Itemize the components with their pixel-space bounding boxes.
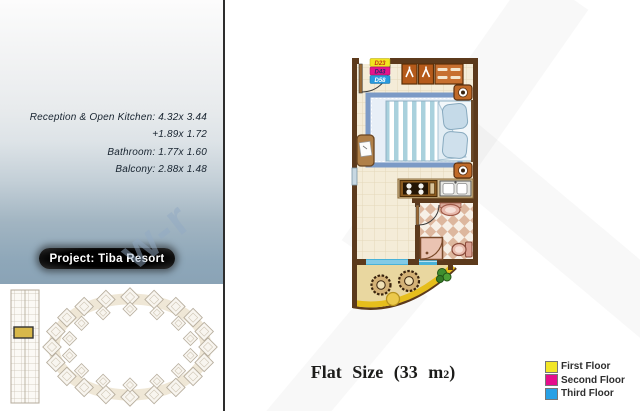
svg-text:D58: D58 bbox=[374, 78, 386, 84]
pillow bbox=[442, 103, 468, 130]
siteplan-building-ring bbox=[43, 288, 217, 406]
kitchen-sink bbox=[440, 181, 471, 196]
unit-label-second-floor: D43 bbox=[370, 67, 390, 76]
svg-text:D43: D43 bbox=[374, 70, 386, 76]
balcony-table bbox=[387, 293, 400, 306]
nightstand bbox=[454, 85, 472, 100]
legend-item-first-floor: First Floor bbox=[545, 360, 625, 373]
siteplan-highlighted-unit bbox=[14, 327, 33, 338]
dimension-line: Bathroom: 1.77x 1.60 bbox=[6, 144, 207, 161]
dimension-line: Balcony: 2.88x 1.48 bbox=[6, 161, 207, 178]
stove bbox=[400, 181, 437, 197]
bed bbox=[386, 100, 474, 162]
vertical-divider bbox=[223, 0, 225, 411]
floor-legend: First Floor Second Floor Third Floor bbox=[545, 360, 625, 401]
flat-size-title: Flat Size (33 m2) bbox=[288, 362, 478, 383]
dimension-line: +1.89x 1.72 bbox=[6, 126, 207, 143]
flat-floor-plan: D23 D43 D58 bbox=[340, 45, 490, 325]
bathroom-sink bbox=[440, 203, 461, 216]
master-site-plan bbox=[8, 287, 218, 407]
balcony bbox=[353, 263, 456, 309]
legend-item-third-floor: Third Floor bbox=[545, 387, 625, 400]
legend-label: First Floor bbox=[561, 361, 610, 372]
legend-label: Third Floor bbox=[561, 388, 614, 399]
legend-item-second-floor: Second Floor bbox=[545, 374, 625, 387]
balcony-chair bbox=[372, 276, 391, 295]
dimension-line: Reception & Open Kitchen: 4.32x 3.44 bbox=[6, 109, 207, 126]
kitchen-counter bbox=[398, 179, 473, 198]
flyer-page: Reception & Open Kitchen: 4.32x 3.44 +1.… bbox=[0, 0, 640, 411]
dimension-list: Reception & Open Kitchen: 4.32x 3.44 +1.… bbox=[6, 109, 207, 179]
second-floor-swatch bbox=[545, 374, 558, 386]
third-floor-swatch bbox=[545, 388, 558, 400]
dresser bbox=[435, 64, 463, 84]
headboard bbox=[471, 100, 474, 162]
nightstand bbox=[454, 163, 472, 178]
window bbox=[352, 168, 357, 185]
toilet bbox=[452, 242, 472, 257]
legend-label: Second Floor bbox=[561, 375, 625, 386]
balcony-chair bbox=[399, 271, 419, 291]
unit-label-third-floor: D58 bbox=[370, 76, 390, 85]
svg-text:D23: D23 bbox=[374, 61, 386, 67]
side-table bbox=[357, 135, 374, 166]
first-floor-swatch bbox=[545, 361, 558, 373]
siteplan-left-building bbox=[11, 290, 39, 403]
shower bbox=[421, 238, 443, 260]
pillow bbox=[442, 131, 468, 159]
unit-label-first-floor: D23 bbox=[370, 59, 390, 68]
